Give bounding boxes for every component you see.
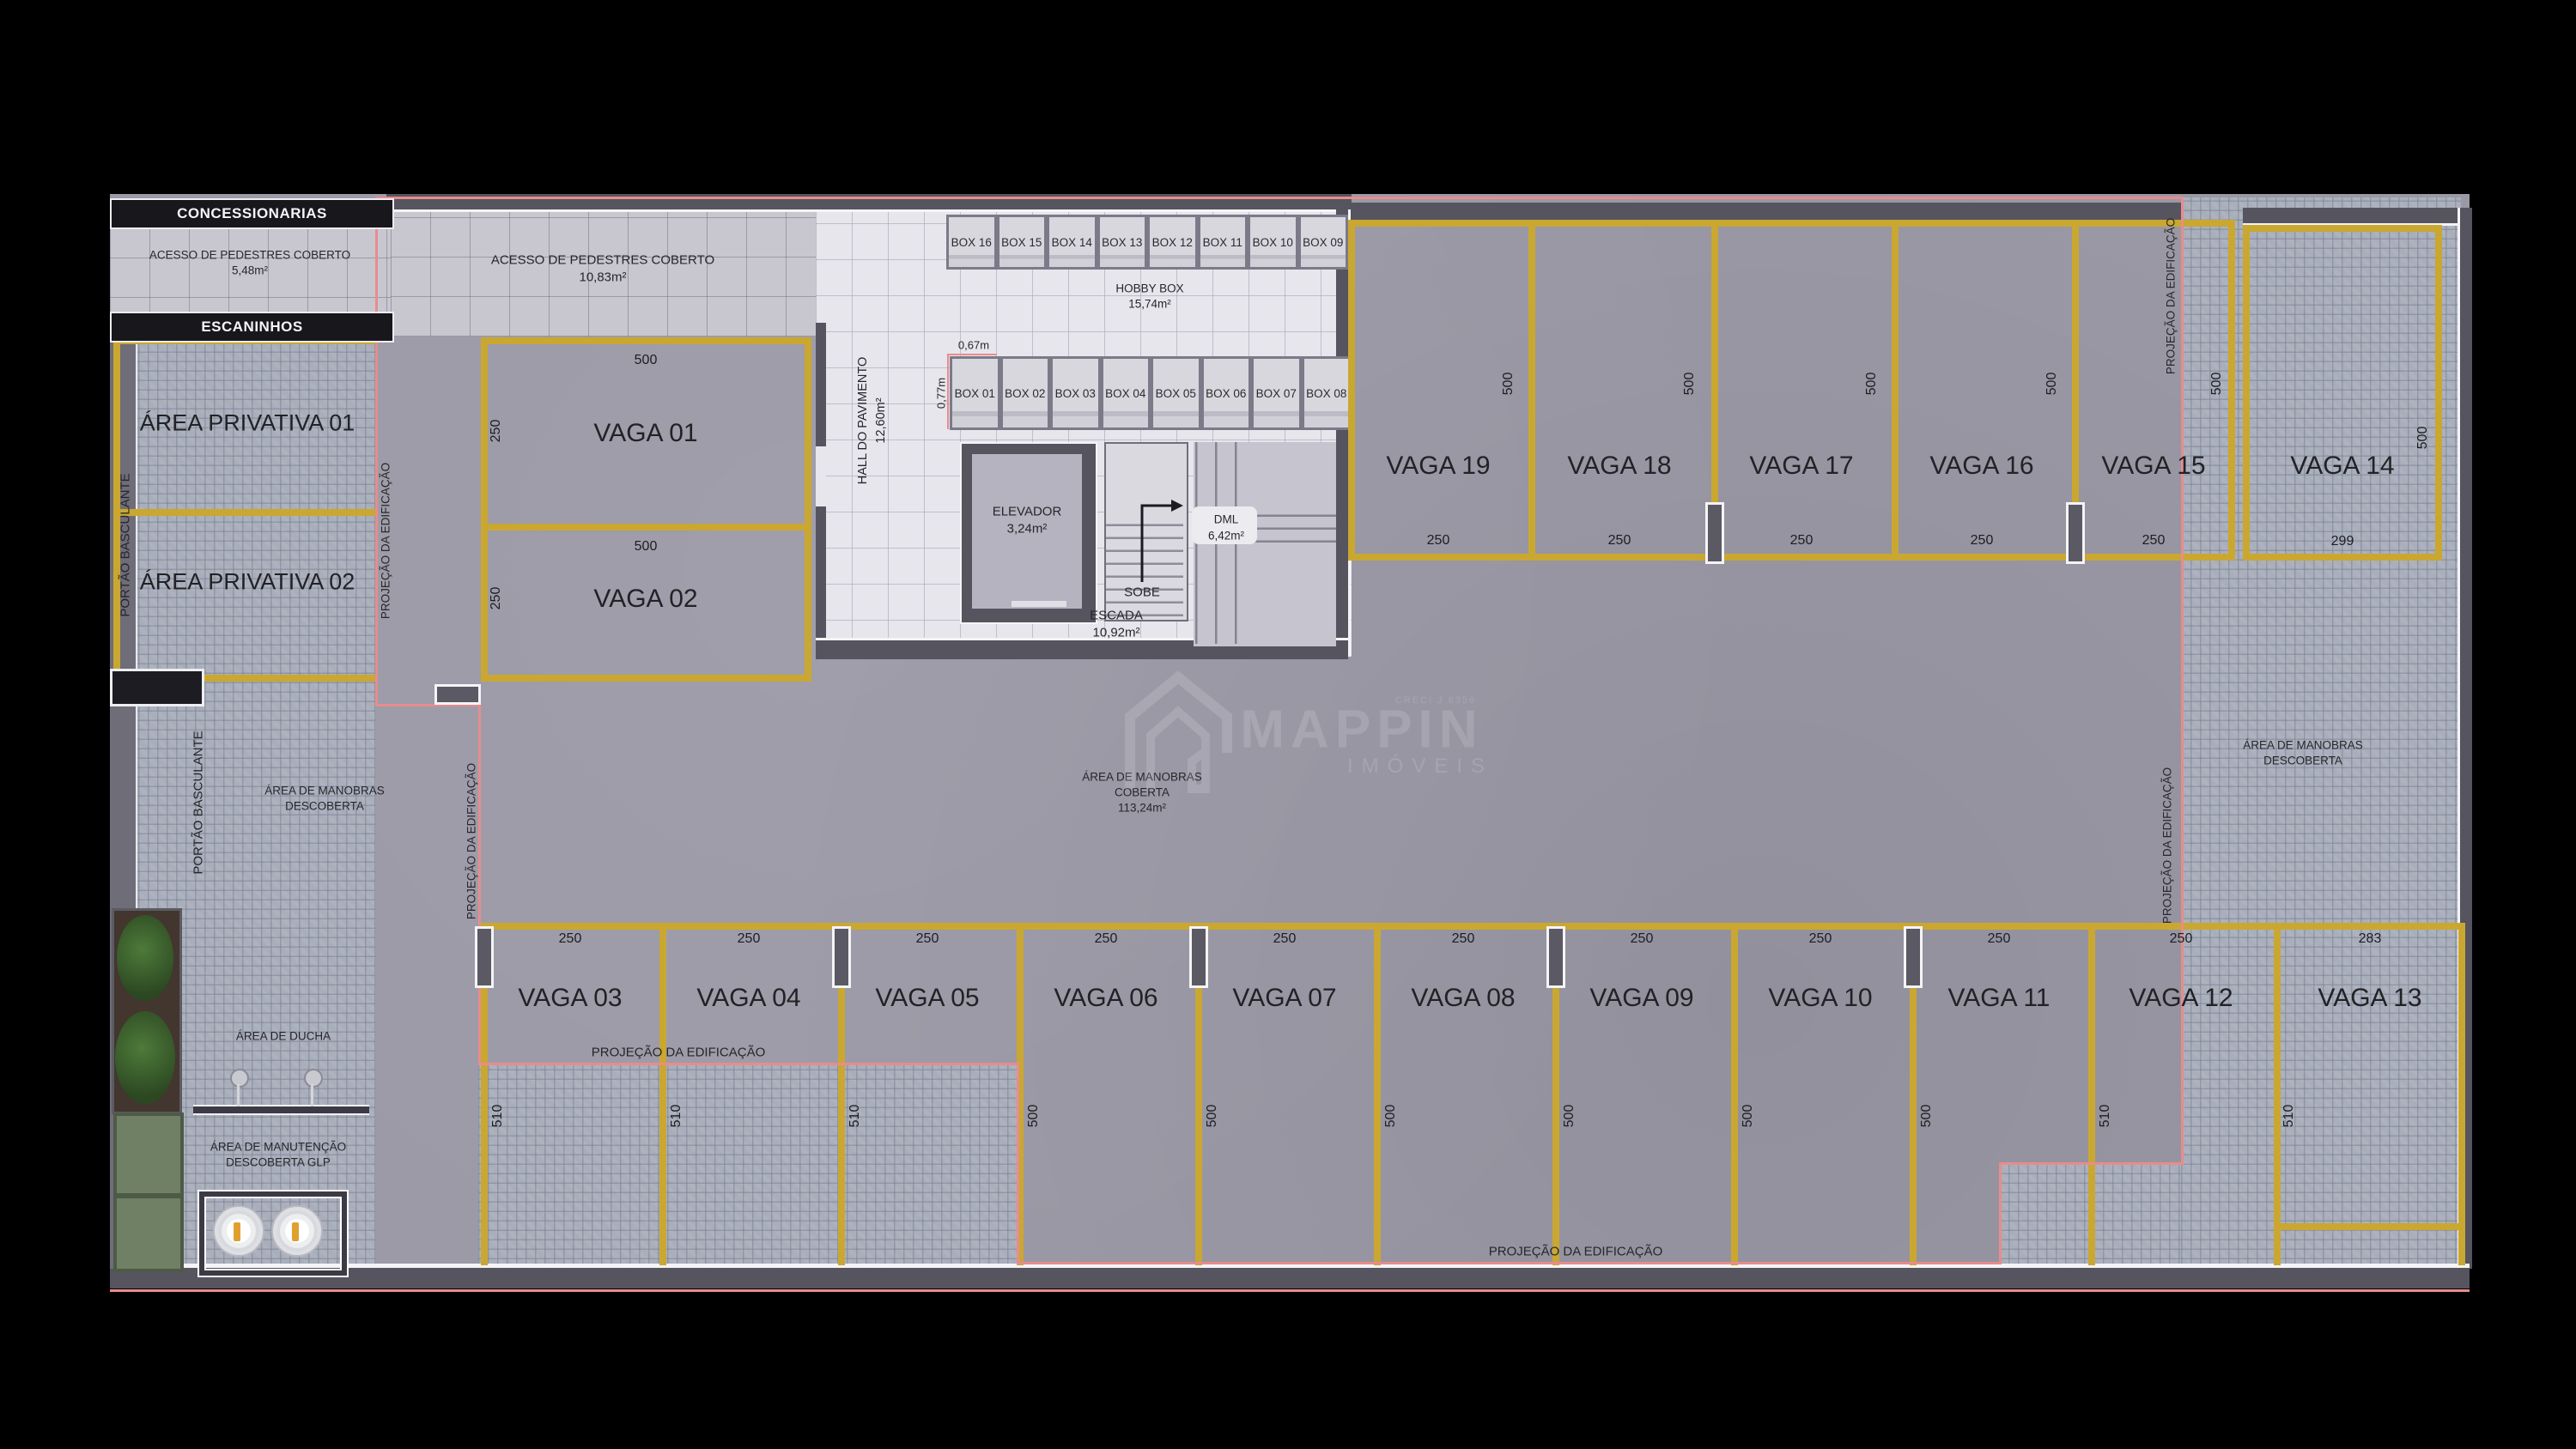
pillar-top-1	[1705, 502, 1724, 564]
glp-valve-2	[292, 1222, 299, 1241]
bottomrow-div-1	[659, 923, 666, 1265]
vaga-15-width: 250	[2142, 533, 2166, 549]
toprow-div-1	[1348, 220, 1355, 561]
manutencao-line2: DESCOBERTA GLP	[226, 1156, 331, 1169]
box-12: BOX 12	[1147, 215, 1198, 270]
mappin-logo-icon	[1116, 669, 1241, 793]
vaga-06-depth: 500	[1026, 1105, 1042, 1128]
hall-label-line2: 12,60m²	[874, 397, 888, 443]
acesso2-line2: 10,83m²	[579, 270, 626, 285]
vaga-07-depth: 500	[1205, 1105, 1220, 1128]
vaga-03-width: 250	[559, 931, 582, 947]
vaga-19-width: 250	[1427, 533, 1450, 549]
pillar-bottom-5	[1904, 926, 1923, 988]
vaga-03-depth: 510	[490, 1105, 506, 1128]
projection-left-v	[375, 197, 378, 706]
banner-escaninhos: ESCANINHOS	[110, 312, 394, 343]
vaga-09-width: 250	[1631, 931, 1654, 947]
stair-treads-upper	[1195, 442, 1252, 509]
box-15: BOX 15	[997, 215, 1048, 270]
sobe-label: SOBE	[1124, 585, 1160, 600]
vaga12block-top	[481, 337, 811, 344]
vaga-08-label: VAGA 08	[1411, 984, 1515, 1013]
area-privativa-02-label: ÁREA PRIVATIVA 02	[140, 569, 355, 596]
manobras-descoberta-right-line2: DESCOBERTA	[2263, 755, 2342, 767]
area-privativa-01-label: ÁREA PRIVATIVA 01	[140, 410, 355, 437]
portao-basculante-2: PORTÃO BASCULANTE	[191, 731, 206, 874]
vaga-14-label: VAGA 14	[2290, 452, 2394, 481]
vaga14-bottom	[2243, 554, 2442, 561]
stair-treads-lower	[1195, 539, 1252, 644]
box-04: BOX 04	[1101, 356, 1151, 430]
box-16: BOX 16	[946, 215, 997, 270]
vaga-16-depth: 500	[2044, 373, 2060, 396]
banner-concessionarias-label: CONCESSIONARIAS	[177, 205, 327, 222]
bush-1	[117, 915, 173, 1001]
dml-line1: DML	[1214, 513, 1239, 526]
elevator-door	[1012, 601, 1066, 607]
projection-v3	[1017, 1063, 1019, 1264]
bottomrow-div-7	[1731, 923, 1738, 1265]
floorplan-canvas: BOX 16 BOX 15 BOX 14 BOX 13 BOX 12 BOX 1…	[0, 0, 2576, 1449]
portao-basculante-1: PORTÃO BASCULANTE	[118, 473, 133, 616]
vaga-19-label: VAGA 19	[1386, 452, 1490, 481]
acesso1-line1: ACESSO DE PEDESTRES COBERTO	[149, 249, 350, 262]
vaga-01-width: 500	[635, 353, 658, 368]
box-dim-width: 0,67m	[958, 339, 989, 352]
banner-concessionarias: CONCESSIONARIAS	[110, 198, 394, 229]
vaga-15-label: VAGA 15	[2101, 452, 2205, 481]
vaga12block-bottom	[481, 675, 811, 682]
bottomrow-div-5	[1374, 923, 1381, 1265]
vaga-14-depth: 500	[2415, 427, 2431, 450]
vaga-10-depth: 500	[1741, 1105, 1756, 1128]
vaga-15-depth: 500	[2209, 373, 2225, 396]
box-11: BOX 11	[1198, 215, 1249, 270]
vaga14-left	[2243, 225, 2250, 561]
box-06: BOX 06	[1201, 356, 1252, 430]
vaga-11-depth: 500	[1919, 1105, 1935, 1128]
vaga-01-depth: 250	[489, 420, 504, 443]
bottomrow-div-11	[2458, 923, 2465, 1265]
vaga-10-width: 250	[1809, 931, 1832, 947]
projecao-right-mid: PROJEÇÃO DA EDIFICAÇÃO	[2161, 767, 2174, 924]
box-01: BOX 01	[950, 356, 1000, 430]
ducha-wall	[193, 1105, 369, 1115]
acesso2-line1: ACESSO DE PEDESTRES COBERTO	[491, 253, 714, 268]
manobras-descoberta-left-line2: DESCOBERTA	[285, 800, 364, 813]
pillar-bottom-4	[1546, 926, 1565, 988]
escada-line1: ESCADA	[1090, 609, 1143, 623]
gate-marker-mid	[434, 684, 481, 705]
vaga-04-width: 250	[738, 931, 761, 947]
vaga-01-label: VAGA 01	[593, 419, 697, 448]
projection-line-bottom	[110, 1289, 2470, 1292]
hobby-box-row-top: BOX 16 BOX 15 BOX 14 BOX 13 BOX 12 BOX 1…	[946, 215, 1348, 270]
vaga12block-left	[481, 337, 488, 682]
manobras-coberta-line3: 113,24m²	[1118, 802, 1166, 815]
vaga-06-width: 250	[1095, 931, 1118, 947]
sobe-arrow-icon	[1130, 496, 1185, 587]
pillar-top-2	[2066, 502, 2085, 564]
vaga-02-label: VAGA 02	[593, 585, 697, 614]
vaga-19-depth: 500	[1501, 373, 1516, 396]
vaga-07-width: 250	[1273, 931, 1297, 947]
projection-v4	[1999, 1162, 2002, 1264]
vaga-05-label: VAGA 05	[875, 984, 979, 1013]
projection-right-v	[2181, 197, 2184, 1165]
floor-paver-right-column	[2181, 197, 2461, 1269]
dml-line2: 6,42m²	[1208, 530, 1244, 543]
glp-valve-1	[234, 1222, 240, 1241]
vaga-11-width: 250	[1988, 931, 2011, 947]
vaga13-bottom	[2274, 1223, 2465, 1230]
vaga-16-width: 250	[1971, 533, 1994, 549]
projection-left-v2	[478, 704, 481, 1065]
vaga-03-label: VAGA 03	[518, 984, 622, 1013]
box-dim-bracket	[947, 354, 997, 355]
pillar-bottom-2	[832, 926, 851, 988]
vaga-16-label: VAGA 16	[1929, 452, 2033, 481]
planter-box-1	[113, 1113, 184, 1197]
vaga-09-label: VAGA 09	[1589, 984, 1693, 1013]
shower-stem-2	[311, 1084, 313, 1106]
wall-bottom-outer	[110, 1268, 2470, 1288]
vaga-12-width: 250	[2170, 931, 2193, 947]
vaga-18-label: VAGA 18	[1567, 452, 1671, 481]
vaga-10-label: VAGA 10	[1768, 984, 1872, 1013]
manutencao-line1: ÁREA DE MANUTENÇÃO	[210, 1141, 346, 1154]
box-03: BOX 03	[1050, 356, 1101, 430]
vaga-17-width: 250	[1790, 533, 1814, 549]
elevador-line1: ELEVADOR	[993, 505, 1062, 519]
vaga12block-right	[805, 337, 811, 682]
vaga-09-depth: 500	[1562, 1105, 1577, 1128]
vaga-17-depth: 500	[1864, 373, 1880, 396]
vaga14-right	[2435, 225, 2442, 561]
ducha-label: ÁREA DE DUCHA	[236, 1030, 331, 1043]
bush-2	[115, 1011, 175, 1104]
vaga-17-label: VAGA 17	[1749, 452, 1853, 481]
bottomrow-div-10	[2274, 923, 2281, 1265]
stair-treads-landing	[1252, 508, 1336, 543]
projection-bottom-h	[1017, 1262, 2002, 1264]
box-02: BOX 02	[1000, 356, 1051, 430]
vaga-06-label: VAGA 06	[1054, 984, 1157, 1013]
vaga-13-width: 283	[2359, 931, 2382, 947]
floor-paver-bottom-left	[478, 1063, 1017, 1269]
planter-box-2	[113, 1195, 184, 1272]
projection-top	[375, 197, 2181, 199]
projection-bottomleft-h	[478, 1063, 1019, 1065]
manobras-descoberta-left-line1: ÁREA DE MANOBRAS	[264, 785, 385, 797]
gate-marker-left	[110, 669, 204, 706]
shower-head-2	[304, 1069, 323, 1088]
hobby-box-line2: 15,74m²	[1128, 298, 1171, 311]
vaga-04-depth: 510	[669, 1105, 684, 1128]
box-05: BOX 05	[1151, 356, 1201, 430]
vaga-14-width: 299	[2331, 534, 2354, 549]
pillar-bottom-3	[1189, 926, 1208, 988]
wall-top-vaga14	[2243, 208, 2461, 226]
vaga-04-label: VAGA 04	[696, 984, 800, 1013]
vaga-13-depth: 510	[2281, 1105, 2297, 1128]
toprow-div-2	[1528, 220, 1535, 561]
pillar-bottom-1	[475, 926, 494, 988]
vaga-12-depth: 510	[2098, 1105, 2113, 1128]
watermark-subtitle: IMÓVEIS	[1347, 755, 1493, 779]
box-13: BOX 13	[1097, 215, 1148, 270]
vaga-05-width: 250	[916, 931, 939, 947]
vaga-18-width: 250	[1608, 533, 1631, 549]
vaga-08-depth: 500	[1383, 1105, 1399, 1128]
bottomrow-line-top	[478, 923, 2465, 930]
vaga12block-mid	[481, 524, 811, 530]
toprow-line-top	[1348, 220, 2235, 227]
vaga-05-depth: 510	[848, 1105, 863, 1128]
projection-step-h2	[1999, 1162, 2181, 1165]
projecao-bottom-center: PROJEÇÃO DA EDIFICAÇÃO	[1489, 1245, 1663, 1259]
vaga-02-width: 500	[635, 539, 658, 555]
projecao-left-1: PROJEÇÃO DA EDIFICAÇÃO	[380, 463, 392, 619]
box-08: BOX 08	[1302, 356, 1352, 430]
escada-line2: 10,92m²	[1092, 626, 1139, 640]
box-07: BOX 07	[1251, 356, 1302, 430]
manobras-descoberta-right-line1: ÁREA DE MANOBRAS	[2243, 739, 2363, 752]
door-gap-hall-left	[816, 446, 826, 506]
vaga-18-depth: 500	[1682, 373, 1698, 396]
box-14: BOX 14	[1047, 215, 1097, 270]
projecao-bottom-left: PROJEÇÃO DA EDIFICAÇÃO	[592, 1046, 766, 1060]
box-09: BOX 09	[1298, 215, 1349, 270]
box-dim-height: 0,77m	[935, 378, 948, 409]
priv-line-mid	[113, 509, 375, 516]
box-10: BOX 10	[1248, 215, 1298, 270]
vaga14-top	[2243, 225, 2442, 232]
vaga-12-label: VAGA 12	[2129, 984, 2233, 1013]
toprow-line-bottom	[1348, 554, 2235, 561]
elevador-line2: 3,24m²	[1007, 522, 1048, 537]
shower-stem-1	[237, 1084, 240, 1106]
hobby-box-row-bottom: BOX 01 BOX 02 BOX 03 BOX 04 BOX 05 BOX 0…	[950, 356, 1352, 430]
vaga-07-label: VAGA 07	[1232, 984, 1336, 1013]
hobby-box-line1: HOBBY BOX	[1115, 282, 1183, 295]
bottomrow-div-9	[2088, 923, 2095, 1265]
toprow-div-4	[1892, 220, 1899, 561]
vaga-02-depth: 250	[489, 587, 504, 610]
banner-escaninhos-label: ESCANINHOS	[201, 318, 302, 336]
vaga-08-width: 250	[1452, 931, 1475, 947]
watermark-brand: MAPPIN	[1240, 700, 1483, 761]
acesso1-line2: 5,48m²	[232, 264, 268, 277]
vaga-11-label: VAGA 11	[1948, 984, 2050, 1013]
shower-head-1	[230, 1069, 249, 1088]
hall-label-line1: HALL DO PAVIMENTO	[856, 357, 870, 485]
toprow-div-6	[2228, 220, 2235, 561]
projecao-right-top: PROJEÇÃO DA EDIFICAÇÃO	[2165, 218, 2178, 374]
vaga-13-label: VAGA 13	[2318, 984, 2421, 1013]
projecao-left-2: PROJEÇÃO DA EDIFICAÇÃO	[465, 763, 478, 919]
